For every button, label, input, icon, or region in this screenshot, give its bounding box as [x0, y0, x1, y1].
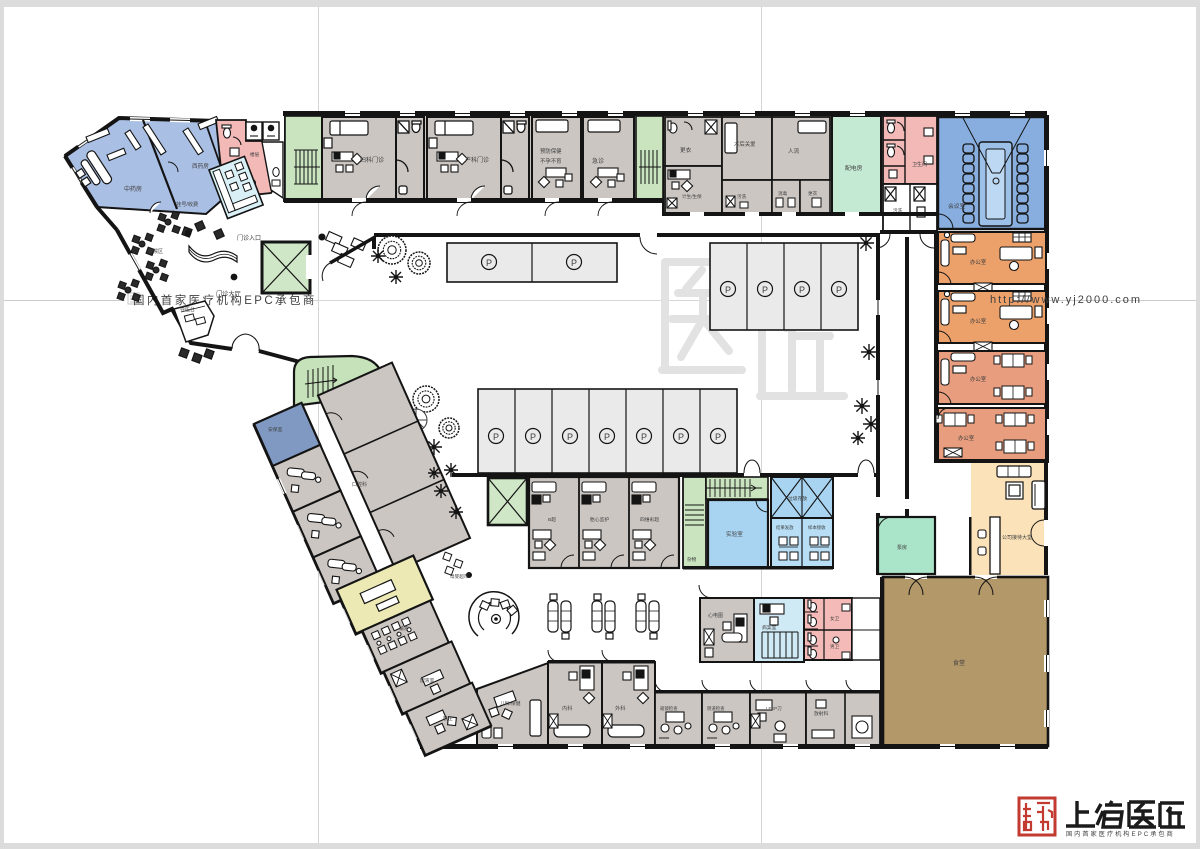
- svg-text:儿科/保健: 儿科/保健: [500, 700, 521, 707]
- svg-text:术后关爱: 术后关爱: [734, 140, 756, 148]
- svg-text:外科: 外科: [615, 704, 625, 712]
- svg-text:会议室: 会议室: [948, 202, 966, 210]
- svg-text:http://www.yj2000.com: http://www.yj2000.com: [990, 294, 1142, 306]
- svg-text:P: P: [715, 432, 721, 442]
- svg-text:P: P: [762, 285, 768, 295]
- svg-text:四维彩超: 四维彩超: [640, 516, 659, 523]
- svg-text:P: P: [604, 432, 610, 442]
- svg-text:产科门诊: 产科门诊: [465, 156, 489, 164]
- svg-text:实验室: 实验室: [726, 530, 743, 538]
- svg-text:人流: 人流: [788, 147, 800, 155]
- svg-text:妇科门诊: 妇科门诊: [360, 156, 384, 164]
- svg-text:P: P: [493, 432, 499, 442]
- svg-text:消毒: 消毒: [778, 190, 788, 197]
- svg-text:办公室: 办公室: [970, 375, 987, 383]
- svg-text:P: P: [799, 285, 805, 295]
- svg-text:P: P: [530, 432, 536, 442]
- svg-text:公司接待大堂: 公司接待大堂: [1002, 534, 1032, 541]
- svg-text:泵房: 泵房: [897, 544, 907, 551]
- svg-text:P: P: [678, 432, 684, 442]
- svg-text:心电图: 心电图: [708, 612, 723, 619]
- svg-text:口腔科: 口腔科: [352, 481, 367, 488]
- svg-text:阴道检查: 阴道检查: [707, 705, 725, 712]
- svg-text:垃圾存放: 垃圾存放: [788, 495, 807, 502]
- svg-text:卫生间: 卫生间: [912, 161, 927, 168]
- svg-text:安保室: 安保室: [268, 426, 283, 433]
- svg-text:西药房: 西药房: [192, 162, 209, 170]
- svg-text:中药房: 中药房: [124, 185, 142, 193]
- svg-text:食堂: 食堂: [953, 659, 965, 667]
- svg-text:P: P: [571, 258, 577, 268]
- svg-text:样本接收: 样本接收: [808, 524, 826, 531]
- svg-text:门诊入口: 门诊入口: [237, 234, 261, 242]
- svg-text:窥镜检查: 窥镜检查: [660, 705, 678, 712]
- svg-text:B超: B超: [548, 516, 556, 523]
- svg-text:病案室: 病案室: [762, 624, 777, 631]
- svg-text:国内首家医疗机构EPC承包商: 国内首家医疗机构EPC承包商: [1066, 830, 1175, 838]
- svg-text:内科: 内科: [562, 704, 572, 712]
- svg-text:等候区: 等候区: [148, 248, 163, 255]
- svg-text:门诊大厅: 门诊大厅: [216, 290, 241, 298]
- svg-text:P: P: [725, 285, 731, 295]
- svg-text:楼层: 楼层: [250, 151, 260, 158]
- svg-text:配液室: 配液室: [420, 677, 435, 684]
- svg-text:女卫: 女卫: [830, 615, 840, 622]
- svg-text:预防保健: 预防保健: [540, 147, 562, 155]
- svg-text:配电房: 配电房: [845, 164, 863, 172]
- svg-text:P: P: [567, 432, 573, 442]
- svg-text:母婴超市: 母婴超市: [450, 573, 469, 580]
- svg-text:急诊: 急诊: [592, 157, 604, 165]
- svg-text:P: P: [836, 285, 842, 295]
- svg-text:办公室: 办公室: [970, 258, 987, 266]
- svg-text:杂物: 杂物: [687, 556, 697, 563]
- svg-text:更衣: 更衣: [680, 146, 692, 154]
- svg-text:计生/生保: 计生/生保: [682, 193, 702, 200]
- svg-text:胎心监护: 胎心监护: [590, 516, 609, 523]
- svg-text:办公室: 办公室: [958, 434, 975, 442]
- svg-text:不孕不育: 不孕不育: [540, 157, 562, 165]
- svg-text:挂号/收费: 挂号/收费: [176, 200, 198, 208]
- svg-text:结果发放: 结果发放: [776, 524, 794, 531]
- svg-text:输液: 输液: [399, 625, 409, 632]
- svg-text:P: P: [641, 432, 647, 442]
- svg-text:更衣: 更衣: [808, 190, 818, 197]
- svg-text:放射科: 放射科: [814, 710, 829, 717]
- svg-text:P: P: [486, 258, 492, 268]
- svg-text:导医台: 导医台: [180, 306, 195, 313]
- svg-text:办公室: 办公室: [970, 317, 987, 325]
- svg-text:污洗: 污洗: [737, 193, 747, 200]
- svg-text:肌注: 肌注: [443, 715, 453, 722]
